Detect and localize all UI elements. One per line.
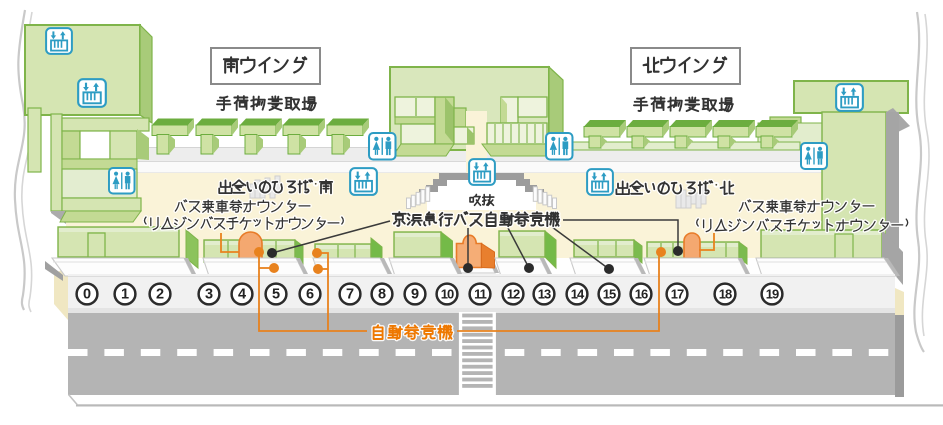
svg-text:10: 10 [441,287,454,302]
svg-text:2: 2 [156,287,164,303]
svg-text:15: 15 [603,287,616,302]
svg-text:3: 3 [205,287,213,303]
svg-text:5: 5 [272,287,280,303]
svg-text:4: 4 [238,287,246,303]
svg-text:19: 19 [766,287,779,302]
svg-text:13: 13 [538,287,551,302]
svg-text:17: 17 [671,287,684,302]
svg-text:0: 0 [83,287,91,303]
svg-text:14: 14 [571,287,585,302]
svg-text:1: 1 [121,287,129,303]
svg-text:12: 12 [507,287,520,302]
svg-text:18: 18 [719,287,732,302]
svg-text:8: 8 [378,287,386,303]
svg-text:6: 6 [306,287,314,303]
svg-text:16: 16 [635,287,648,302]
svg-text:9: 9 [411,287,419,303]
svg-text:7: 7 [346,287,354,303]
svg-text:11: 11 [474,287,487,302]
